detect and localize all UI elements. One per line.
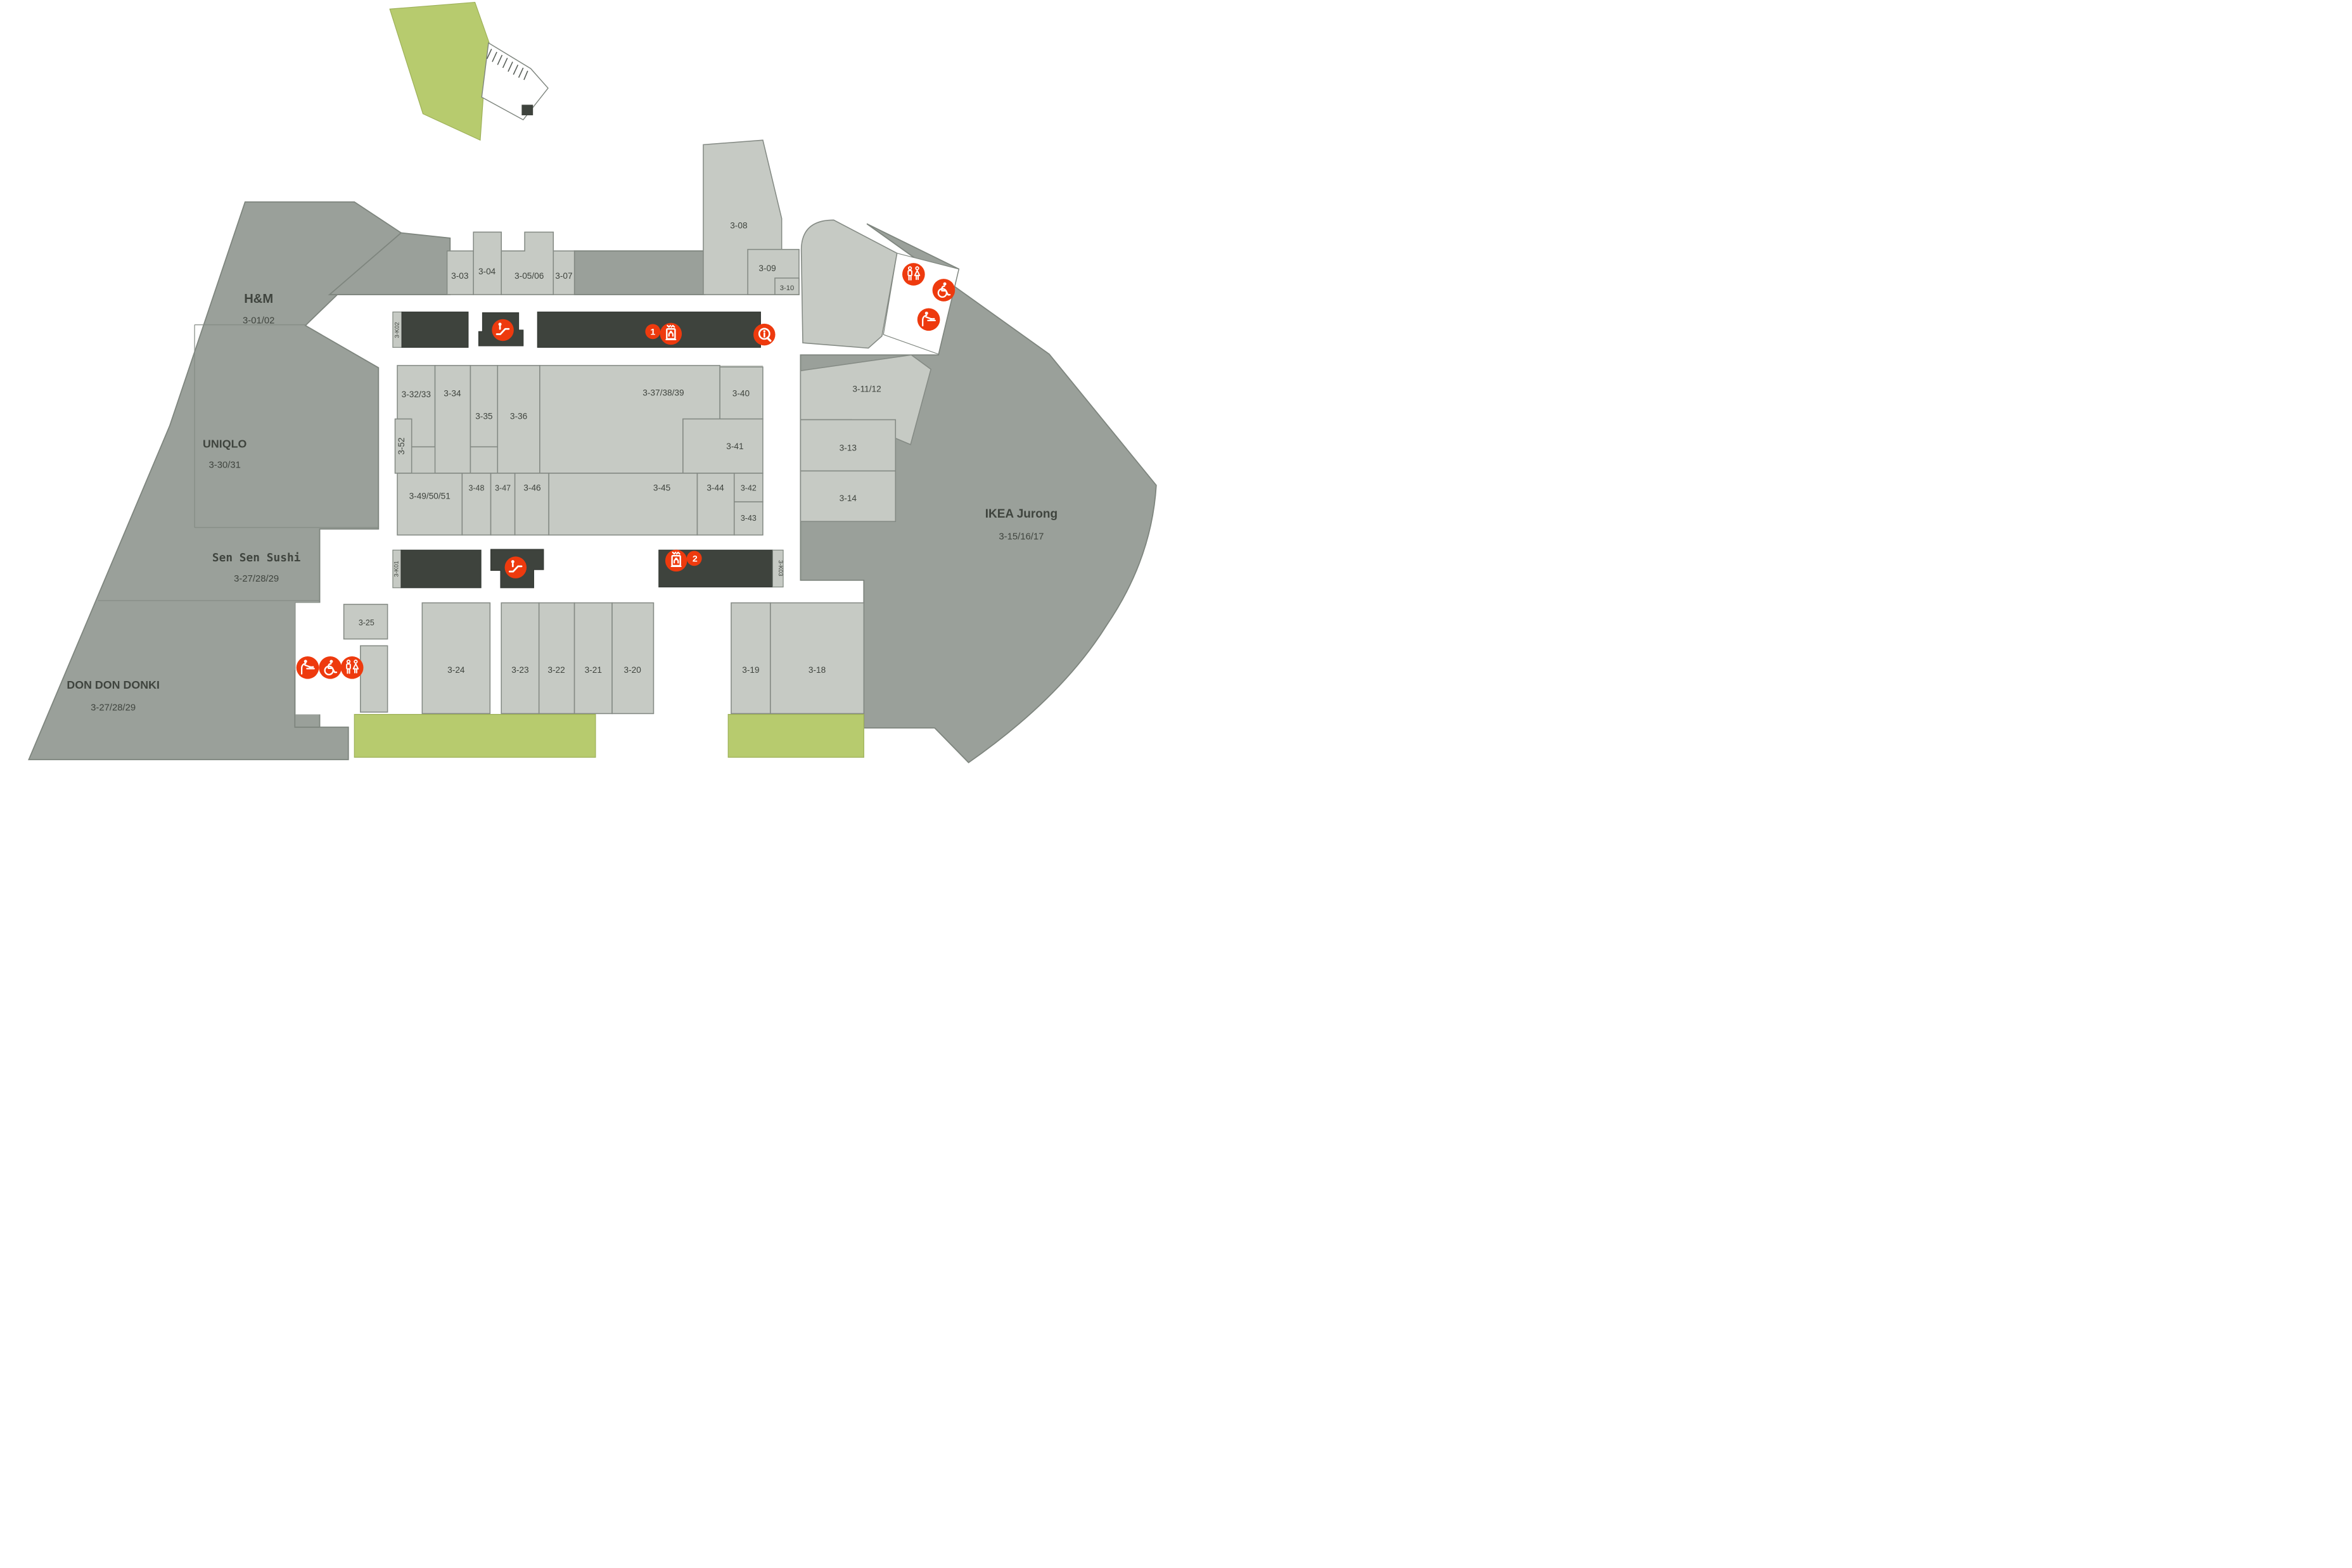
lift-icon (665, 550, 687, 571)
green-strip-east (728, 715, 864, 758)
unit-3-41-shape[interactable] (683, 419, 763, 473)
unit-3-10-label: 3-10 (780, 284, 795, 292)
unit-3-13-label: 3-13 (840, 443, 857, 452)
unit-3-45-shape[interactable] (549, 473, 697, 535)
unit-3-11-12-label: 3-11/12 (852, 385, 881, 394)
unit-3-24-shape[interactable] (422, 603, 490, 714)
top-strip-right (575, 251, 705, 295)
uniqlo-unit-label: 3-30/31 (208, 461, 240, 471)
ikea-label: IKEA Jurong (985, 507, 1058, 521)
unit-3-04-label: 3-04 (478, 267, 496, 276)
toilets-icon-southwest[interactable] (341, 656, 364, 679)
unit-3-52-label: 3-52 (397, 437, 406, 454)
unit-3-49-50-51-shape[interactable] (397, 473, 462, 535)
kiosk-3-K02-label: 3-K02 (393, 322, 400, 338)
unit-3-47-label: 3-47 (495, 483, 511, 492)
unit-northeast-shape[interactable] (802, 220, 897, 348)
unit-3-21-label: 3-21 (585, 665, 602, 675)
lift-1-badge-label: 1 (650, 328, 655, 338)
kiosk-3-K02-shape[interactable] (402, 312, 468, 347)
mall-floorplan-map: { "stores": { "hm": {"name": "H&M", "uni… (0, 0, 1176, 784)
unit-3-19-shape[interactable] (731, 603, 770, 714)
ikea-unit-label: 3-15/16/17 (999, 532, 1044, 542)
roof-garden-green (390, 3, 495, 141)
toilets-icon-northeast[interactable] (902, 263, 925, 286)
unit-3-18-label: 3-18 (808, 665, 826, 675)
unit-3-42-label: 3-42 (741, 483, 757, 492)
unit-3-05-06-label: 3-05/06 (514, 271, 544, 281)
unit-3-24-label: 3-24 (447, 665, 465, 675)
unit-3-44-label: 3-44 (706, 483, 724, 492)
unit-3-43-label: 3-43 (741, 514, 757, 523)
escalator-south-icon[interactable] (505, 556, 527, 578)
baby-change-icon-northeast[interactable] (917, 308, 940, 331)
unit-3-25-label: 3-25 (359, 618, 374, 627)
baby-change-icon-southwest[interactable] (297, 656, 319, 679)
roof-garden (390, 3, 548, 141)
unit-3-04-shape[interactable] (473, 232, 501, 295)
unit-3-37-38-39-label: 3-37/38/39 (642, 388, 684, 397)
sensen-label: Sen Sen Sushi (212, 551, 301, 564)
unit-3-40-label: 3-40 (732, 389, 750, 398)
unit-3-23-label: 3-23 (511, 665, 528, 675)
unit-3-09-label: 3-09 (758, 264, 776, 273)
unit-3-21-shape[interactable] (575, 603, 612, 714)
uniqlo-label: UNIQLO (203, 438, 246, 450)
unit-3-20-shape[interactable] (612, 603, 653, 714)
unit-3-19-label: 3-19 (742, 665, 759, 675)
unit-3-45-label: 3-45 (653, 483, 671, 492)
accessible-toilet-icon-northeast[interactable] (933, 279, 955, 302)
unit-3-22-label: 3-22 (547, 665, 565, 675)
lift-icon (660, 323, 682, 345)
unit-3-36-label: 3-36 (510, 411, 527, 421)
donki-label: DON DON DONKI (67, 679, 160, 691)
hm-unit-label: 3-01/02 (243, 316, 274, 326)
hm-label: H&M (244, 292, 273, 306)
unit-3-46-label: 3-46 (523, 483, 540, 492)
unit-3-23-shape[interactable] (501, 603, 539, 714)
unit-3-35-label: 3-35 (475, 411, 493, 421)
unit-3-35a-shape[interactable] (470, 447, 497, 473)
unit-3-03-label: 3-03 (451, 271, 468, 281)
unit-3-20-label: 3-20 (624, 665, 642, 675)
sensen-unit-label: 3-27/28/29 (234, 574, 279, 584)
unit-3-35-shape[interactable] (470, 366, 497, 447)
unit-3-41-label: 3-41 (726, 442, 743, 451)
unit-3-49-50-51-label: 3-49/50/51 (409, 491, 451, 500)
unit-3-32-33-label: 3-32/33 (402, 390, 431, 399)
unit-3-22-shape[interactable] (539, 603, 575, 714)
floorplan-svg: H&M 3-01/02 UNIQLO 3-30/31 Sen Sen Sushi… (0, 0, 1176, 784)
unit-3-07-label: 3-07 (555, 271, 572, 281)
lift-2-badge-label: 2 (693, 554, 698, 564)
escalator-north-icon[interactable] (492, 319, 513, 341)
unit-3-48-shape[interactable] (462, 473, 490, 535)
roof-structure-marker (521, 105, 533, 115)
unit-3-34-label: 3-34 (444, 389, 461, 398)
unit-3-25a-shape[interactable] (361, 646, 388, 712)
roof-stair-landing (482, 43, 548, 120)
green-strip-west (354, 715, 596, 758)
kiosk-3-K01-label: 3-K01 (393, 561, 400, 577)
kiosk-3-K01-shape[interactable] (401, 550, 481, 587)
unit-3-08-label: 3-08 (730, 220, 747, 230)
donki-unit-label: 3-27/28/29 (91, 703, 136, 713)
kiosk-3-K03-label: 3-K03 (777, 560, 784, 576)
unit-3-47-shape[interactable] (491, 473, 515, 535)
unit-3-14-label: 3-14 (840, 494, 857, 503)
information-icon[interactable] (753, 324, 775, 345)
accessible-toilet-icon-southwest[interactable] (319, 656, 342, 679)
unit-3-34-shape[interactable] (435, 366, 471, 473)
unit-3-48-label: 3-48 (468, 483, 484, 492)
unit-3-05-06-shape[interactable] (501, 232, 553, 295)
unit-3-18-shape[interactable] (770, 603, 864, 714)
